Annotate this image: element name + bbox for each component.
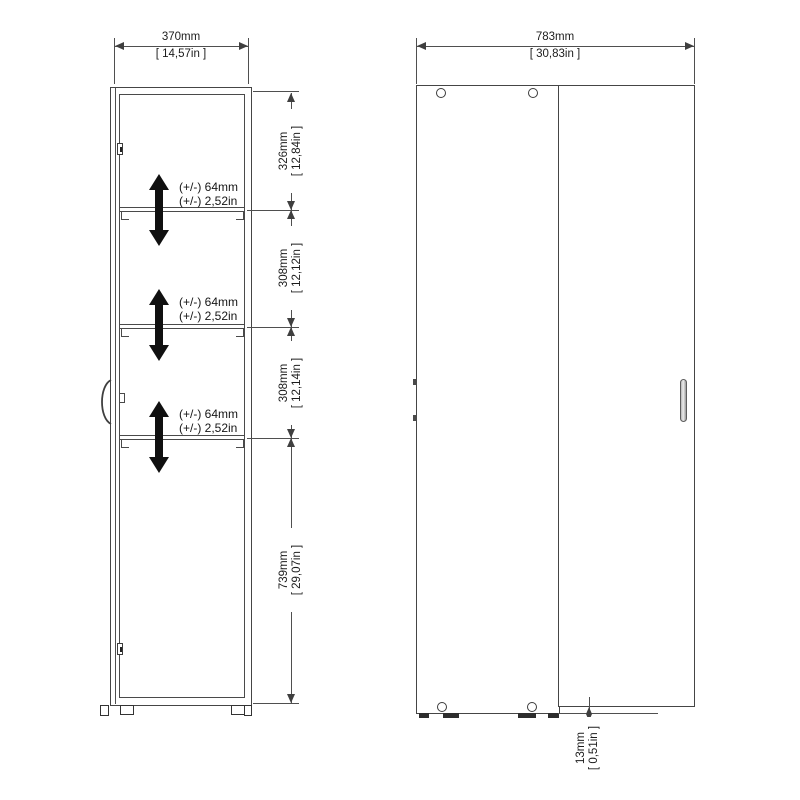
base-gap-dim: 13mm [ 0,51in ] bbox=[575, 717, 601, 779]
front-view-body-outline bbox=[416, 85, 560, 714]
base-gap-dim-in: [ 0,51in ] bbox=[588, 726, 601, 770]
base-gap-dim-mm: 13mm bbox=[575, 732, 588, 764]
front-view-door-outline bbox=[558, 85, 695, 707]
cabinet-dimension-drawing: (+/-) 64mm (+/-) 2,52in (+/-) 64mm (+/-)… bbox=[0, 0, 800, 800]
hinge-tick-icon bbox=[413, 379, 417, 385]
door-handle bbox=[680, 379, 687, 422]
hinge-tick-icon bbox=[413, 415, 417, 421]
width-dim-in: [ 30,83in ] bbox=[505, 48, 605, 61]
cabinet-foot bbox=[419, 713, 429, 718]
width-dim-mm: 783mm bbox=[505, 31, 605, 44]
dim-arrow-icon bbox=[685, 42, 694, 50]
cabinet-foot bbox=[518, 713, 536, 718]
fitting-hole-icon bbox=[527, 702, 537, 712]
fitting-hole-icon bbox=[528, 88, 538, 98]
dim-arrow-icon bbox=[417, 42, 426, 50]
dim-arrow-icon bbox=[586, 707, 592, 714]
cabinet-foot bbox=[443, 713, 459, 718]
dim-extension-line bbox=[694, 38, 695, 84]
fitting-hole-icon bbox=[437, 702, 447, 712]
dim-extension-line bbox=[558, 713, 658, 714]
front-view: 783mm [ 30,83in ] 13mm [ 0,51in ] bbox=[0, 0, 800, 800]
fitting-hole-icon bbox=[436, 88, 446, 98]
dim-line-width bbox=[416, 46, 695, 47]
